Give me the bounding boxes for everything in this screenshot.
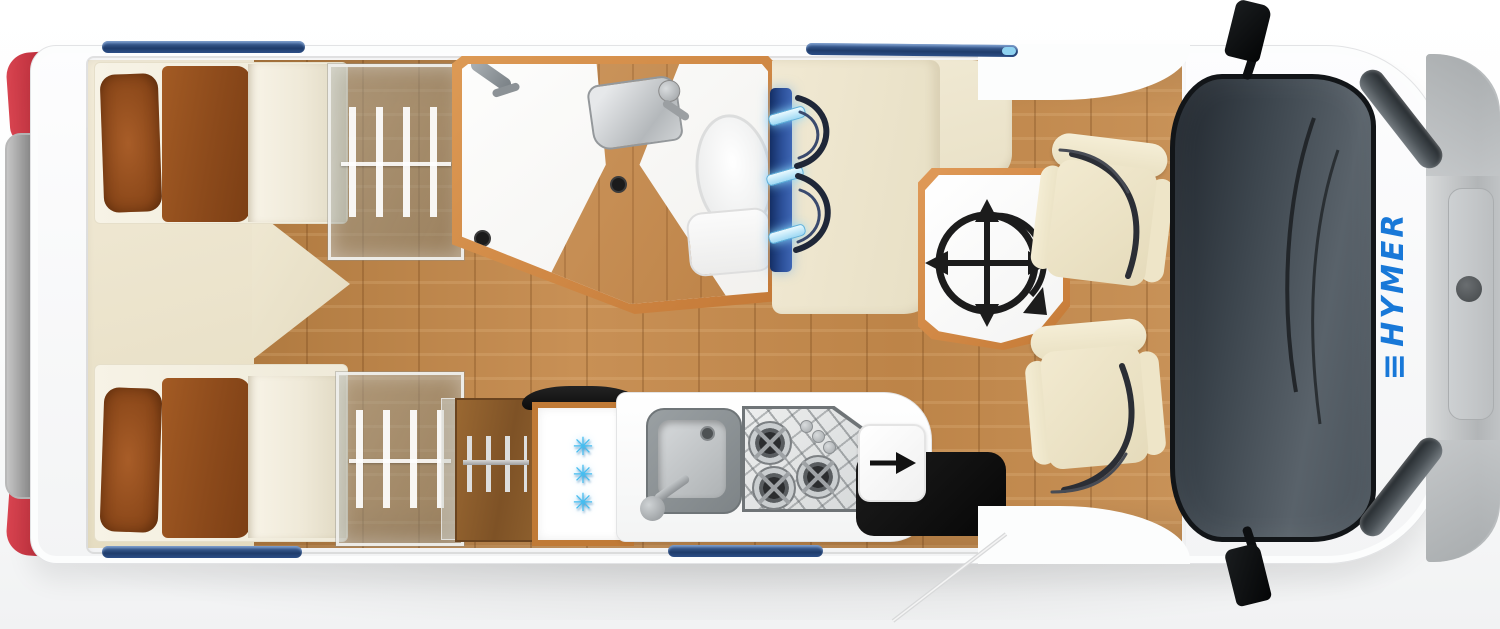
stove-knob-icon xyxy=(812,430,825,443)
entrance-arrow-icon xyxy=(860,426,924,500)
cab-seat-left xyxy=(1027,130,1180,305)
pillow-top xyxy=(100,73,163,213)
windshield xyxy=(1170,74,1376,542)
roof-window-strip xyxy=(102,546,302,558)
wardrobe-top xyxy=(328,64,464,260)
hymer-logo: ≡ HYMER xyxy=(1373,191,1413,401)
seat-cushion xyxy=(1045,158,1159,287)
snowflake-icon: ✳ xyxy=(573,434,594,459)
dinette-bench-side xyxy=(772,60,940,314)
cab-seat-right xyxy=(1021,316,1168,487)
roof-window-latch-icon xyxy=(1002,47,1016,55)
hymer-logo-text: HYMER xyxy=(1376,212,1411,347)
entrance-door xyxy=(858,424,926,502)
snowflake-icon: ✳ xyxy=(573,490,594,515)
wardrobe-rail xyxy=(463,460,529,465)
seat-cushion xyxy=(1039,344,1149,470)
roof-window-strip xyxy=(806,43,1018,57)
kitchen-wardrobe xyxy=(455,398,537,542)
blanket-bottom xyxy=(248,376,346,538)
stove-knob-icon xyxy=(823,441,836,454)
sink-faucet-lever xyxy=(661,99,690,122)
shower-drain-icon xyxy=(610,176,627,193)
roof-window-strip xyxy=(102,41,305,53)
duvet-bottom xyxy=(162,378,250,538)
front-grille-panel xyxy=(1448,188,1494,420)
roof-window-strip xyxy=(668,545,823,557)
bathroom-sink xyxy=(586,74,684,152)
front-badge-icon xyxy=(1456,276,1482,302)
snowflake-icon: ✳ xyxy=(573,462,594,487)
stove-knob-icon xyxy=(800,420,813,433)
pillow-bottom xyxy=(100,387,163,533)
sink-faucet-knob xyxy=(657,79,682,104)
duvet-top xyxy=(162,66,250,222)
toilet-tank xyxy=(685,206,774,277)
hangers-icon xyxy=(349,107,448,217)
hymer-logo-mark: ≡ xyxy=(1374,350,1413,381)
sink-drain-icon xyxy=(700,426,715,441)
hangers-icon xyxy=(356,410,449,507)
kitchen-faucet-base xyxy=(640,496,665,521)
motorhome-floor-plan: ✳ ✳ ✳ xyxy=(0,0,1500,629)
